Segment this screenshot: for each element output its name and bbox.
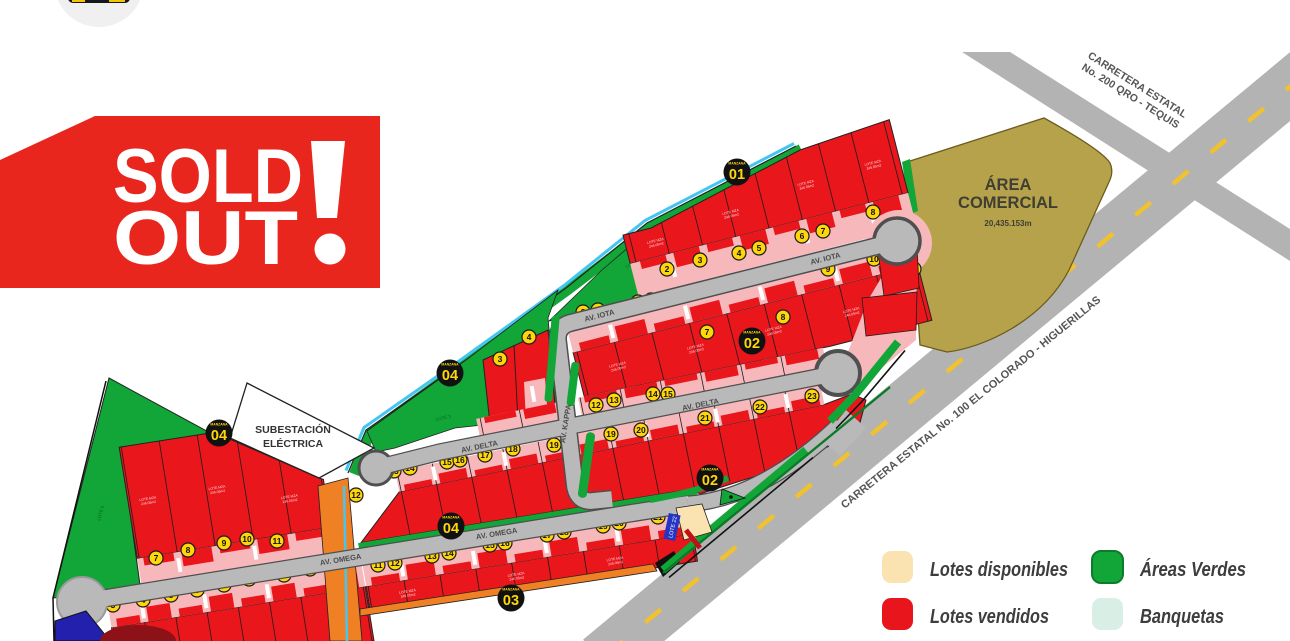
svg-text:20: 20 <box>636 425 646 435</box>
svg-text:03: 03 <box>503 593 519 609</box>
svg-text:9: 9 <box>222 538 227 548</box>
svg-text:Áreas Verdes: Áreas Verdes <box>1139 558 1246 581</box>
svg-text:23: 23 <box>807 391 817 401</box>
svg-text:8: 8 <box>781 312 786 322</box>
svg-text:ELÉCTRICA: ELÉCTRICA <box>263 437 324 450</box>
svg-text:12: 12 <box>351 490 361 500</box>
svg-text:04: 04 <box>442 368 458 384</box>
svg-text:SUBESTACIÓN: SUBESTACIÓN <box>255 423 331 436</box>
svg-text:8: 8 <box>871 207 876 217</box>
svg-text:11: 11 <box>273 536 282 546</box>
svg-text:02: 02 <box>744 336 760 352</box>
svg-text:19: 19 <box>606 429 616 439</box>
svg-text:22: 22 <box>755 402 765 412</box>
svg-text:MANZANA: MANZANA <box>210 423 228 427</box>
svg-text:OUT: OUT <box>113 196 298 281</box>
svg-text:MANZANA: MANZANA <box>441 363 459 367</box>
svg-text:Lotes vendidos: Lotes vendidos <box>930 606 1049 628</box>
svg-text:Lotes disponibles: Lotes disponibles <box>930 559 1068 581</box>
svg-text:COMERCIAL: COMERCIAL <box>958 194 1058 212</box>
svg-text:04: 04 <box>443 521 459 537</box>
svg-text:MANZANA: MANZANA <box>728 162 746 166</box>
svg-text:01: 01 <box>729 167 745 183</box>
svg-text:7: 7 <box>821 226 826 236</box>
svg-text:20,435.153m: 20,435.153m <box>984 219 1031 228</box>
svg-text:4: 4 <box>527 332 532 342</box>
svg-text:21: 21 <box>700 413 710 423</box>
svg-text:7: 7 <box>154 553 159 563</box>
svg-text:ÁREA: ÁREA <box>985 175 1032 194</box>
svg-text:6: 6 <box>800 231 805 241</box>
svg-text:8: 8 <box>186 545 191 555</box>
svg-text:10: 10 <box>242 534 252 544</box>
svg-text:7: 7 <box>705 327 710 337</box>
svg-text:5: 5 <box>757 243 762 253</box>
svg-text:MANZANA: MANZANA <box>442 516 460 520</box>
svg-text:MANZANA: MANZANA <box>502 588 520 592</box>
svg-text:MANZANA: MANZANA <box>743 331 761 335</box>
svg-text:Banquetas: Banquetas <box>1140 606 1224 628</box>
svg-text:3: 3 <box>698 255 703 265</box>
svg-text:4: 4 <box>737 248 742 258</box>
svg-text:12: 12 <box>591 400 601 410</box>
svg-text:02: 02 <box>702 473 718 489</box>
svg-text:3: 3 <box>498 354 503 364</box>
svg-text:13: 13 <box>609 395 619 405</box>
svg-text:14: 14 <box>648 389 658 399</box>
svg-text:MANZANA: MANZANA <box>701 468 719 472</box>
svg-text:04: 04 <box>211 428 227 444</box>
svg-text:2: 2 <box>665 264 670 274</box>
